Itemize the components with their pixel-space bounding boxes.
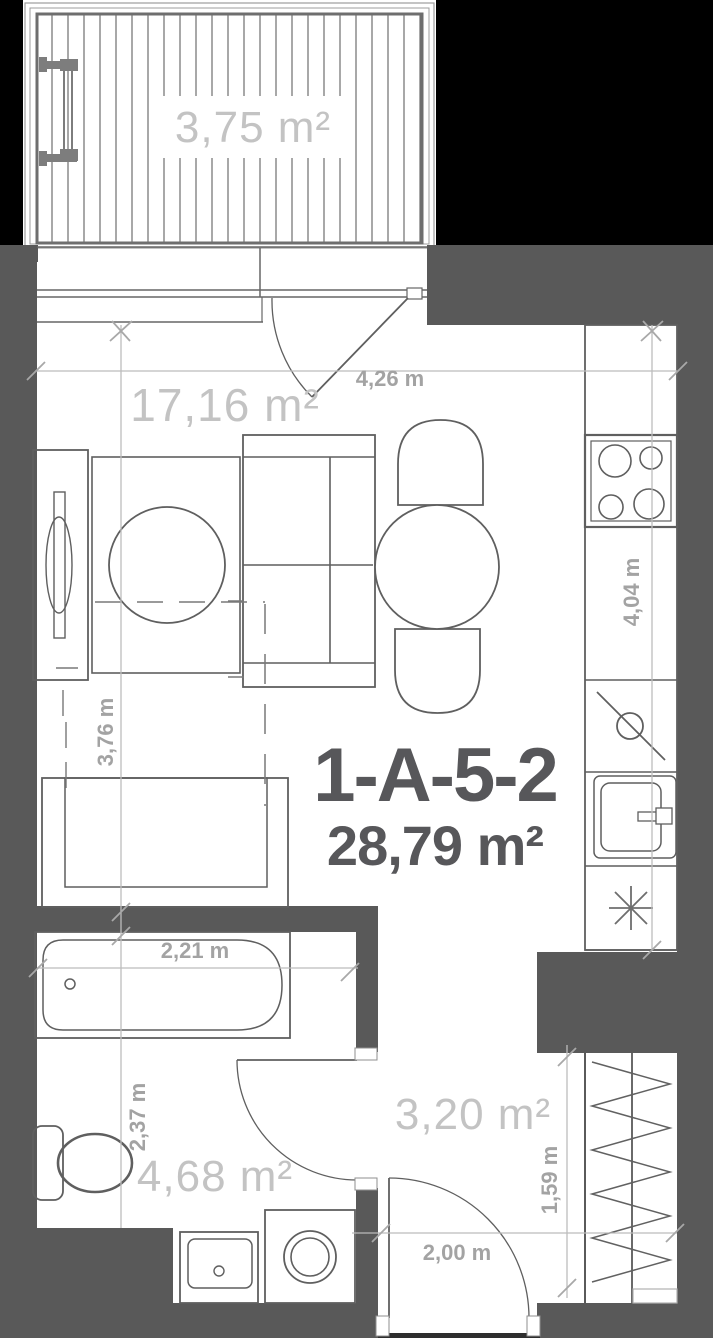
balcony-area-label: 3,75 m²: [162, 103, 344, 153]
kitchen: [585, 325, 677, 950]
bed: [42, 778, 288, 907]
sofa: [243, 435, 375, 687]
dim-bathroom-width: 2,21 m: [150, 938, 240, 964]
dim-bathroom-depth: 2,37 m: [125, 1072, 149, 1162]
dim-kitchen-run: 4,04 m: [619, 547, 643, 637]
balcony-window: [37, 247, 427, 322]
dim-hallway-depth: 1,59 m: [537, 1135, 561, 1225]
kitchen-counter: [585, 325, 677, 950]
floor-plan-drawing: [0, 0, 713, 1338]
round-pouf: [109, 507, 225, 623]
unit-id-label: 1-A-5-2: [285, 738, 585, 814]
tv-stand: [33, 450, 88, 680]
dim-living-depth: 3,76 m: [93, 687, 117, 777]
floor-plan: 3,75 m² 17,16 m² 4,68 m² 3,20 m² 1-A-5-2…: [0, 0, 713, 1338]
boiler-symbol-icon: [609, 886, 653, 930]
washing-machine: [265, 1210, 355, 1303]
wardrobe: [585, 1053, 677, 1303]
total-area-label: 28,79 m²: [285, 818, 585, 874]
bathroom-area-label: 4,68 m²: [135, 1152, 295, 1202]
dim-living-width: 4,26 m: [345, 366, 435, 392]
dim-hallway-width: 2,00 m: [412, 1240, 502, 1266]
hanging-rail-zigzag: [592, 1062, 670, 1282]
hallway-area-label: 3,20 m²: [393, 1090, 553, 1140]
rug: [92, 457, 240, 673]
washbasin: [180, 1232, 258, 1303]
dining-table: [375, 505, 499, 629]
toilet: [33, 1126, 132, 1200]
living-area-label: 17,16 m²: [130, 378, 320, 432]
